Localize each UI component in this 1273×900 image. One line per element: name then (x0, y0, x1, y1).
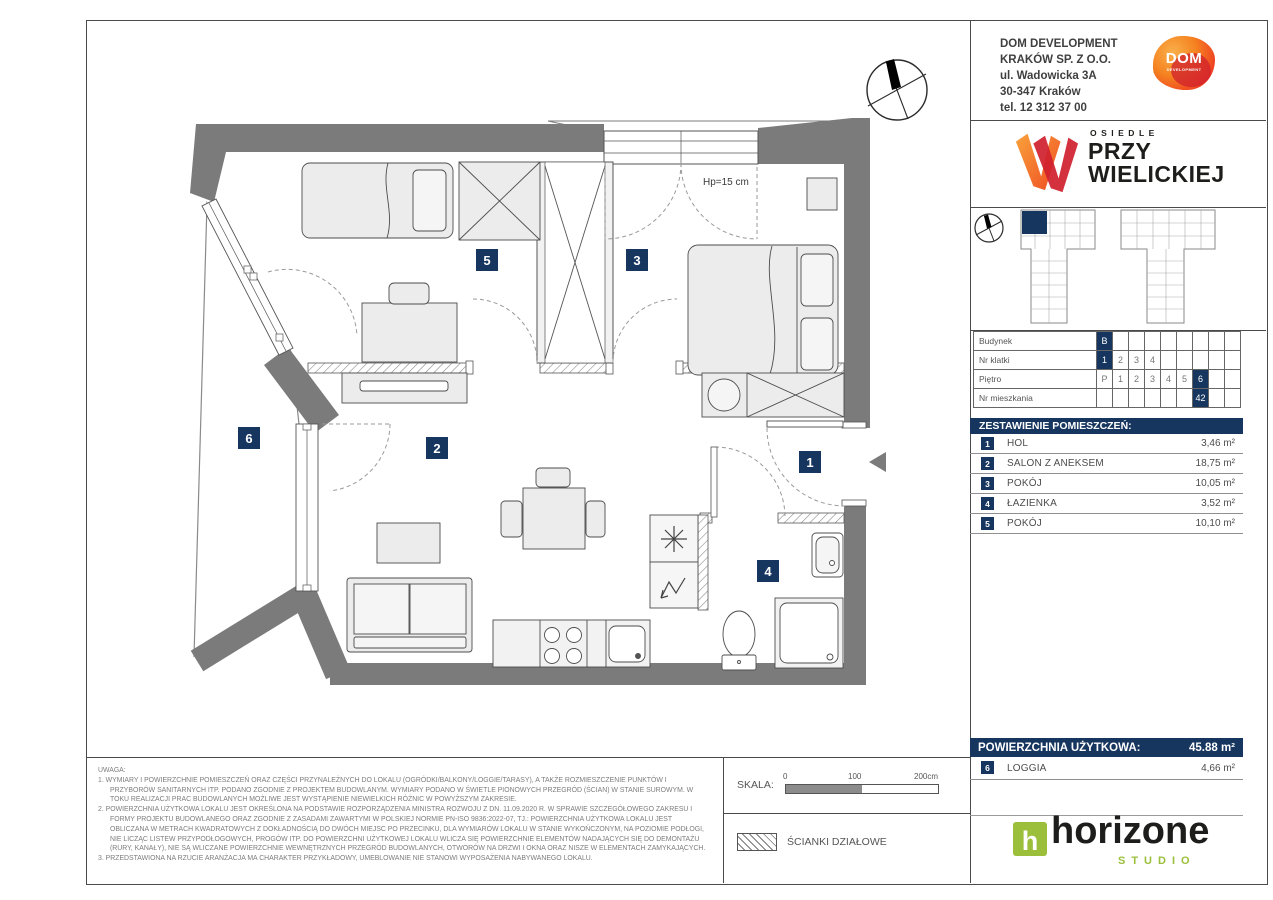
room-badge: 2 (433, 441, 440, 456)
room-name: SALON Z ANEKSEM (1007, 458, 1104, 469)
unit-grid-row-label: Piętro (974, 370, 1097, 389)
loggia-row-wrap: 6 LOGGIA 4,66 m² (970, 757, 1243, 780)
room-row: 5 POKÓJ 10,10 m² (970, 514, 1243, 534)
sidebar-section-line-1 (970, 120, 1266, 121)
room-area: 10,05 m² (1196, 478, 1235, 489)
burner (545, 649, 560, 664)
room-name: ŁAZIENKA (1007, 498, 1057, 509)
dom-logo-title: DOM (1153, 50, 1215, 67)
unit-grid-cell (1129, 389, 1145, 408)
notes-list: 1. WYMIARY I POWIERZCHNIE POMIESZCZEŃ OR… (98, 776, 710, 864)
horizone-logo-mark: h (1013, 822, 1047, 856)
partition-wall-label: ŚCIANKI DZIAŁOWE (787, 836, 887, 848)
unit-grid-cell (1193, 332, 1209, 351)
scale-tick-200: 200cm (914, 772, 938, 781)
room-number-badge: 6 (981, 761, 994, 774)
scale-bar (785, 784, 939, 794)
room-area: 18,75 m² (1196, 458, 1235, 469)
partition-wall-swatch (737, 833, 777, 851)
unit-grid-cell (1097, 389, 1113, 408)
unit-grid-cell: 3 (1129, 351, 1145, 370)
unit-grid-cell: 1 (1113, 370, 1129, 389)
room-number-badge: 5 (981, 517, 994, 530)
building-keyplan-1 (1020, 209, 1098, 325)
bathroom-fixtures (722, 533, 843, 670)
room-row: 1 HOL 3,46 m² (970, 434, 1243, 454)
unit-grid-cell (1225, 351, 1241, 370)
room5-furniture (302, 162, 540, 362)
pillow (801, 254, 833, 306)
unit-grid-cell (1145, 389, 1161, 408)
appliance-column (650, 562, 698, 608)
notes-heading: UWAGA: (98, 766, 710, 776)
chair (586, 501, 605, 537)
unit-grid-cell (1161, 351, 1177, 370)
scale-tick-100: 100 (848, 772, 861, 781)
room-row: 3 POKÓJ 10,05 m² (970, 474, 1243, 494)
scale-tick-0: 0 (783, 772, 787, 781)
rooms-table-header: ZESTAWIENIE POMIESZCZEŃ: (970, 418, 1243, 434)
bottom-strip-divider (86, 757, 970, 758)
room-badge: 1 (806, 455, 813, 470)
pillow (413, 170, 446, 231)
unit-grid-cell (1177, 389, 1193, 408)
unit-grid-cell: 4 (1145, 351, 1161, 370)
room-number-badge: 1 (981, 437, 994, 450)
sofa-cushion (354, 584, 409, 634)
sidebar-section-line-2 (970, 207, 1266, 208)
horizone-logo-name: horizone (1051, 810, 1209, 853)
room-badge: 5 (483, 253, 490, 268)
unit-grid-cell (1145, 332, 1161, 351)
room-number-badge: 2 (981, 457, 994, 470)
sink-drain (636, 654, 641, 659)
shaft (537, 162, 613, 363)
unit-grid-row-label: Nr mieszkania (974, 389, 1097, 408)
sofa-back (354, 637, 466, 648)
unit-grid-cell (1225, 389, 1241, 408)
desk-chair (389, 283, 429, 304)
toilet (723, 611, 755, 657)
burner (567, 649, 582, 664)
dom-development-logo: DOM DEVELOPMENT (1153, 36, 1215, 90)
estate-logo-mark (1012, 126, 1080, 196)
horizone-logo-studio: STUDIO (1118, 855, 1196, 867)
unit-location-marker (1022, 211, 1047, 234)
sofa-cushion (410, 584, 466, 634)
unit-grid-cell: 2 (1129, 370, 1145, 389)
unit-grid-cell (1129, 332, 1145, 351)
unit-grid-cell (1161, 389, 1177, 408)
room3-furniture (688, 178, 838, 375)
room-area: 10,10 m² (1196, 518, 1235, 529)
unit-grid-cell (1177, 332, 1193, 351)
unit-grid-cell: 5 (1177, 370, 1193, 389)
scale-legend-divider (723, 813, 970, 814)
floor-plan: 1 2 3 4 5 6 Hp=15 cm (86, 20, 970, 757)
chair (501, 501, 522, 537)
notes-block: UWAGA: 1. WYMIARY I POWIERZCHNIE POMIESZ… (98, 766, 710, 864)
room-name: HOL (1007, 438, 1028, 449)
usable-area-bar: POWIERZCHNIA UŻYTKOWA: 45.88 m² (970, 738, 1243, 757)
desk (362, 303, 457, 362)
usable-area-value: 45.88 m² (1189, 742, 1235, 754)
unit-grid-row-label: Nr klatki (974, 351, 1097, 370)
tv (360, 381, 448, 391)
key-compass-icon (972, 211, 1006, 245)
unit-grid-cell (1193, 351, 1209, 370)
room-number-badge: 4 (981, 497, 994, 510)
horizone-h: h (1022, 826, 1039, 856)
unit-grid-row-label: Budynek (974, 332, 1097, 351)
unit-grid-cell: 6 (1193, 370, 1209, 389)
unit-grid-cell: 4 (1161, 370, 1177, 389)
usable-area-label: POWIERZCHNIA UŻYTKOWA: (978, 742, 1140, 754)
entrance-arrow-icon (869, 452, 886, 472)
notes-scale-divider (723, 757, 724, 883)
unit-grid-cell (1113, 332, 1129, 351)
floor-plan-sheet: 1 2 3 4 5 6 Hp=15 cm DOM DEVELOPMENT KRA… (0, 0, 1273, 900)
room-name: LOGGIA (1007, 763, 1047, 774)
bathroom-door-leaf (711, 447, 717, 517)
dining-table (523, 488, 585, 549)
room-badge: 6 (245, 431, 252, 446)
company-info: DOM DEVELOPMENT KRAKÓW SP. Z O.O. ul. Wa… (1000, 36, 1118, 116)
estate-logo-eyebrow: OSIEDLE (1090, 128, 1159, 138)
unit-grid-cell: B (1097, 332, 1113, 351)
note-item: 2. POWIERZCHNIA UŻYTKOWA LOKALU JEST OKR… (98, 805, 710, 854)
unit-grid-cell (1209, 370, 1225, 389)
room-row: 4 ŁAZIENKA 3,52 m² (970, 494, 1243, 514)
unit-grid-cell (1177, 351, 1193, 370)
unit-grid-cell (1225, 370, 1241, 389)
hall-closet (702, 373, 844, 427)
unit-grid-cell: P (1097, 370, 1113, 389)
scale-label: SKALA: (737, 779, 774, 791)
room-badge: 3 (633, 253, 640, 268)
chair (536, 468, 570, 487)
nightstand (807, 178, 837, 210)
unit-grid-cell (1209, 332, 1225, 351)
rooms-table: 1 HOL 3,46 m² 2 SALON Z ANEKSEM 18,75 m²… (970, 434, 1243, 534)
unit-grid-cell: 1 (1097, 351, 1113, 370)
burner (567, 628, 582, 643)
room-name: POKÓJ (1007, 478, 1042, 489)
loggia-row: 6 LOGGIA 4,66 m² (970, 757, 1243, 780)
room-number-badge: 3 (981, 477, 994, 490)
hanger-rod (767, 421, 843, 427)
estate-logo-line2: WIELICKIEJ (1088, 161, 1225, 188)
note-item: 3. PRZEDSTAWIONA NA RZUCIE ARANŻACJA MA … (98, 854, 710, 864)
room-area: 3,46 m² (1201, 438, 1235, 449)
north-compass-icon (867, 59, 927, 120)
note-item: 1. WYMIARY I POWIERZCHNIE POMIESZCZEŃ OR… (98, 776, 710, 805)
parapet-height-note: Hp=15 cm (703, 177, 749, 188)
unit-grid-cell (1113, 389, 1129, 408)
unit-grid-cell (1209, 351, 1225, 370)
room-row: 2 SALON Z ANEKSEM 18,75 m² (970, 454, 1243, 474)
salon-furniture (342, 373, 605, 652)
burner (545, 628, 560, 643)
coffee-table (377, 523, 440, 563)
unit-grid-cell: 3 (1145, 370, 1161, 389)
unit-locator-table: BudynekBNr klatki1234PiętroP123456Nr mie… (973, 331, 1241, 408)
pillow (801, 318, 833, 370)
unit-grid-cell (1225, 332, 1241, 351)
dom-logo-subtitle: DEVELOPMENT (1153, 67, 1215, 72)
unit-grid-cell: 42 (1193, 389, 1209, 408)
room-area: 4,66 m² (1201, 763, 1235, 774)
room-name: POKÓJ (1007, 518, 1042, 529)
washing-machine (708, 379, 740, 411)
unit-grid-cell (1161, 332, 1177, 351)
unit-grid-cell (1209, 389, 1225, 408)
room-badge: 4 (764, 564, 772, 579)
building-keyplan-2 (1120, 207, 1216, 325)
room-area: 3,52 m² (1201, 498, 1235, 509)
unit-grid-cell: 2 (1113, 351, 1129, 370)
